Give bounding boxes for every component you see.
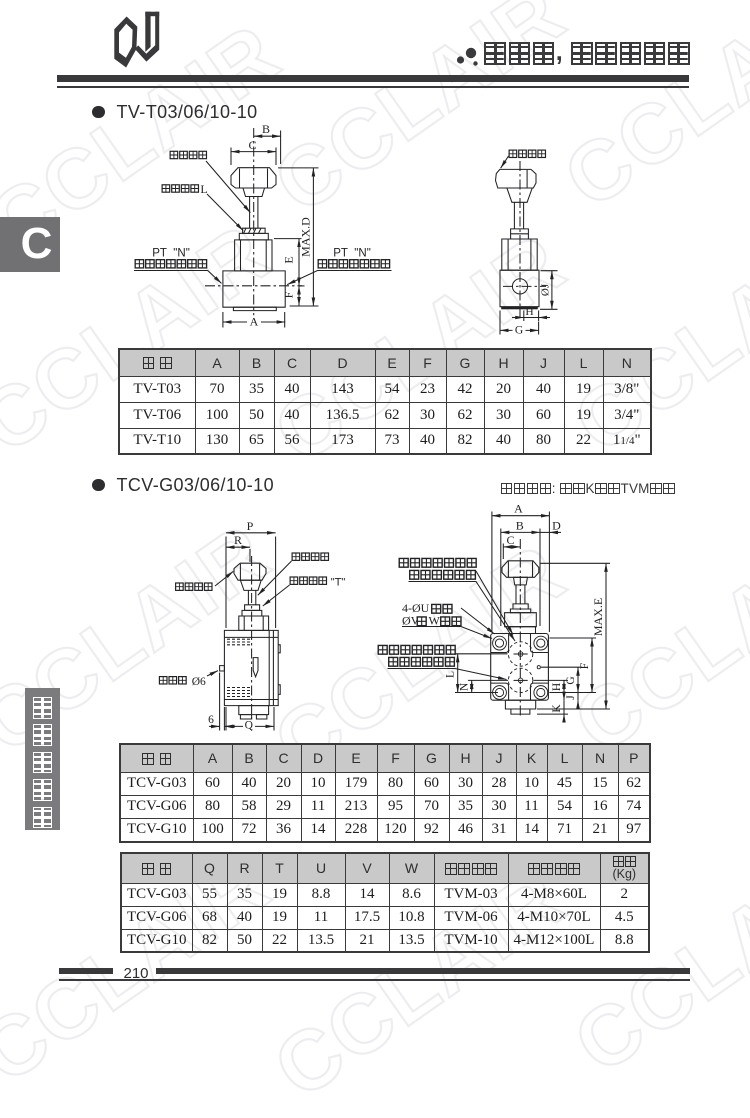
svg-text:C: C	[506, 533, 514, 547]
svg-text:A: A	[514, 505, 523, 516]
svg-text:C: C	[248, 138, 256, 152]
svg-text:PT "N": PT "N"	[333, 248, 371, 260]
svg-text:G: G	[515, 325, 523, 337]
svg-text:Q: Q	[245, 720, 254, 732]
svg-text:H: H	[551, 683, 563, 691]
svg-text:N: N	[459, 682, 471, 691]
svg-text:W: W	[429, 614, 441, 628]
svg-text:F: F	[282, 291, 296, 298]
svg-text:R: R	[234, 533, 242, 547]
svg-text:J: J	[565, 695, 577, 700]
svg-text:D: D	[552, 518, 561, 532]
svg-text:B: B	[262, 125, 270, 136]
svg-text:6: 6	[208, 714, 214, 726]
svg-text:L: L	[445, 671, 457, 678]
svg-text:L: L	[200, 182, 207, 196]
svg-text:H: H	[525, 306, 533, 318]
svg-text:ØJ: ØJ	[539, 283, 551, 296]
svg-text:PT "N": PT "N"	[152, 248, 190, 260]
svg-text:P: P	[247, 519, 254, 533]
svg-text:E: E	[282, 256, 296, 263]
svg-text:"T": "T"	[331, 576, 346, 588]
svg-text:MAX.E: MAX.E	[591, 598, 605, 636]
svg-text:MAX.D: MAX.D	[299, 217, 313, 257]
svg-text:K: K	[551, 704, 563, 713]
svg-text:B: B	[516, 518, 524, 532]
svg-text:A: A	[250, 314, 259, 328]
svg-text:Ø6: Ø6	[192, 676, 206, 688]
svg-text:F: F	[579, 663, 591, 669]
